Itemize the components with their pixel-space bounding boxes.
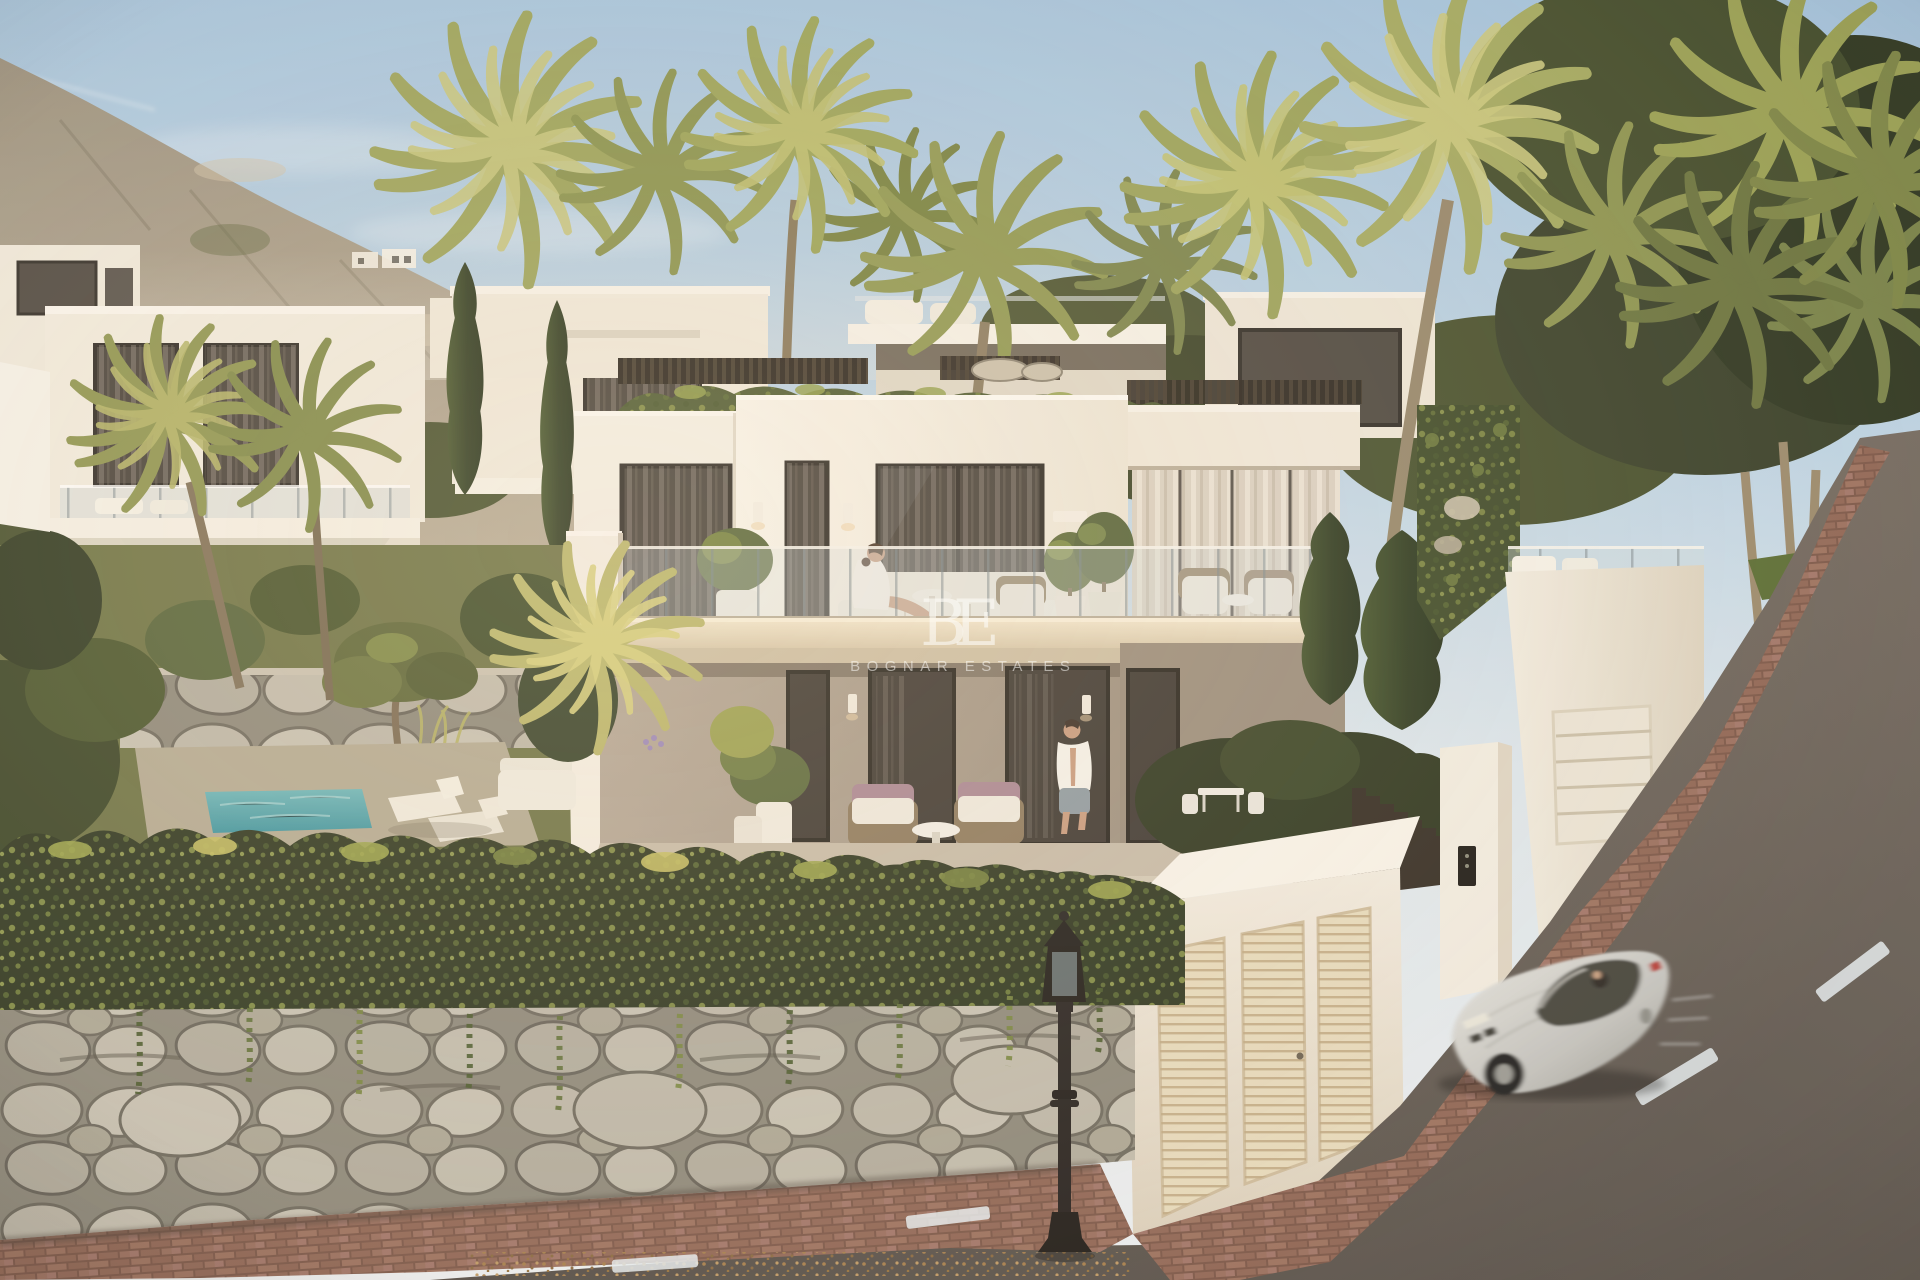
scene-canvas	[0, 0, 1920, 1280]
vignette	[0, 0, 1920, 1280]
architectural-rendering: BE BOGNAR ESTATES	[0, 0, 1920, 1280]
